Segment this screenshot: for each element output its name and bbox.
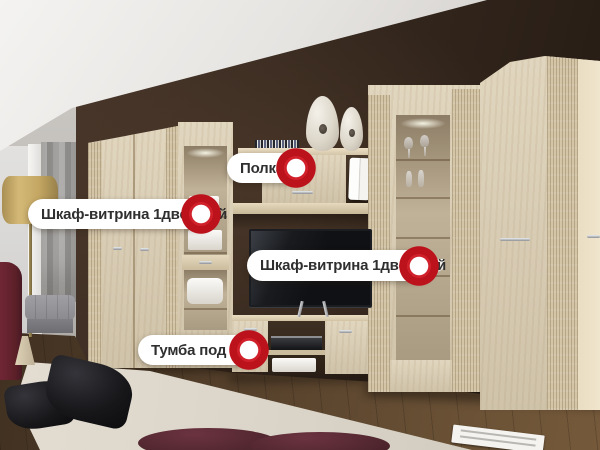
door-handle bbox=[140, 248, 149, 251]
wardrobe-right bbox=[480, 52, 600, 410]
hotspot-ring-icon[interactable] bbox=[399, 246, 439, 286]
champagne-flute bbox=[406, 171, 412, 187]
drawer bbox=[182, 255, 229, 270]
hotspot-ring-icon[interactable] bbox=[181, 194, 221, 234]
callout-shelf[interactable]: Полка bbox=[227, 153, 310, 183]
callout-vitrine-left[interactable]: Шкаф-витрина 1дверный bbox=[28, 199, 215, 229]
callout-vitrine-right[interactable]: Шкаф-витрина 1дверный bbox=[247, 250, 433, 281]
shelf-edge bbox=[396, 315, 450, 317]
display-cabinet-right bbox=[368, 85, 480, 392]
fluted-panel bbox=[452, 89, 480, 392]
drawer-handle bbox=[199, 261, 212, 264]
door-handle bbox=[339, 330, 352, 333]
shelf-edge bbox=[396, 197, 450, 199]
callout-tv-stand[interactable]: Тумба под ТВ bbox=[138, 335, 263, 365]
glass-door-lower bbox=[184, 270, 227, 330]
wine-glass bbox=[404, 137, 413, 149]
led-light bbox=[186, 148, 225, 158]
papers bbox=[272, 358, 316, 372]
door-seam bbox=[133, 132, 135, 368]
hotspot-ring-icon[interactable] bbox=[229, 330, 269, 370]
wardrobe-left bbox=[88, 126, 178, 368]
glass-door bbox=[396, 115, 450, 360]
stand-open-shelves bbox=[268, 321, 325, 372]
flap-handle bbox=[292, 191, 313, 194]
stand-door-right bbox=[325, 321, 368, 374]
shelf-edge bbox=[184, 252, 227, 254]
shelf-items bbox=[187, 278, 223, 304]
fluted-panel bbox=[88, 136, 102, 368]
wardrobe-door bbox=[578, 58, 600, 410]
shelf-edge bbox=[396, 237, 450, 239]
vase-hole bbox=[349, 129, 355, 137]
glass-stem bbox=[408, 149, 410, 158]
vase-small bbox=[340, 107, 363, 151]
hotspot-ring-icon[interactable] bbox=[276, 148, 316, 188]
fluted-panel bbox=[166, 126, 178, 368]
bench-base bbox=[27, 319, 73, 333]
door-handle bbox=[587, 235, 600, 238]
bench-cushion bbox=[25, 295, 75, 320]
led-light bbox=[400, 118, 446, 129]
fluted-panel bbox=[547, 54, 578, 410]
wine-glass bbox=[420, 135, 429, 147]
room-scene: Шкаф-витрина 1дверный Полка Шкаф-витрина… bbox=[0, 0, 600, 450]
cabinet-base bbox=[390, 360, 452, 392]
shelf-edge bbox=[396, 159, 450, 161]
dvd-player bbox=[271, 336, 322, 350]
door-handle bbox=[500, 238, 530, 241]
door-handle bbox=[113, 247, 122, 250]
glass-stem bbox=[424, 147, 426, 156]
wardrobe-door bbox=[480, 62, 547, 410]
shelf-board bbox=[268, 350, 325, 355]
display-cabinet-left bbox=[178, 122, 233, 368]
vase-hole bbox=[319, 124, 327, 134]
vase-large bbox=[306, 96, 339, 151]
champagne-flute bbox=[418, 170, 424, 187]
shelf-edge bbox=[184, 308, 227, 310]
